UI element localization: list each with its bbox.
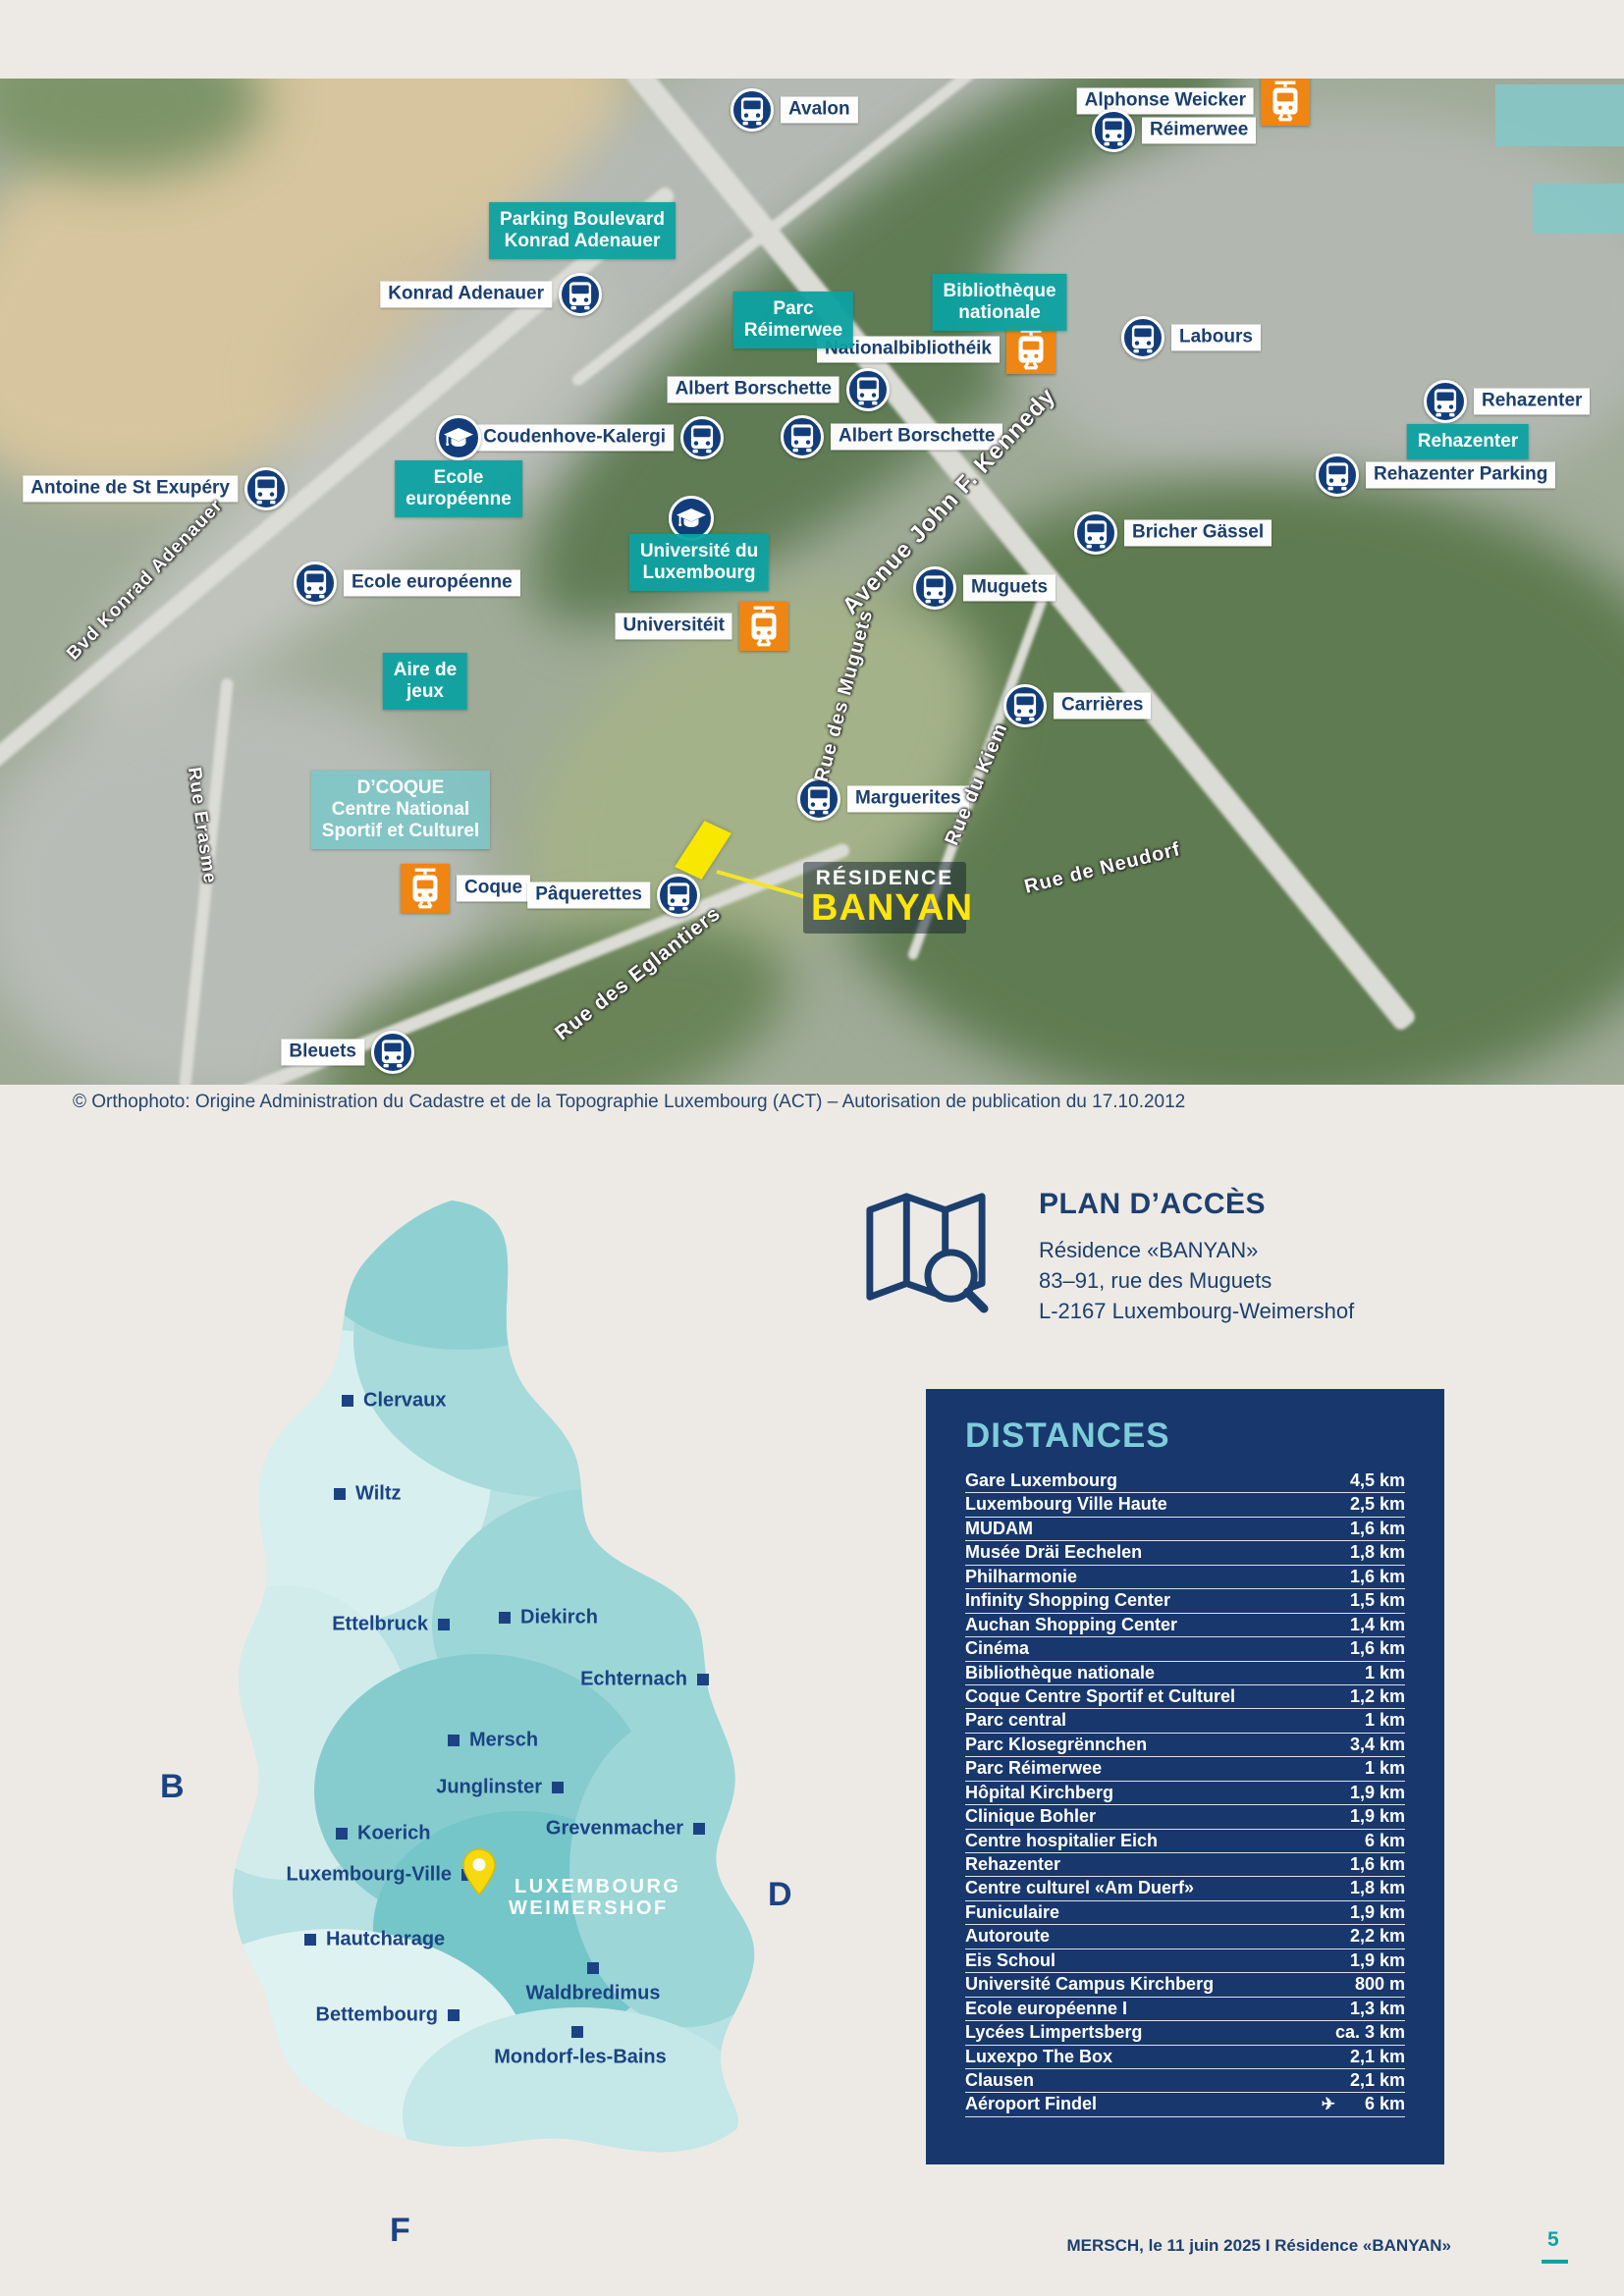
distance-value: 1,9 km <box>1350 1807 1405 1826</box>
map-stop-label: Pâquerettes <box>527 882 650 909</box>
city-marker <box>342 1395 353 1407</box>
distance-value: 1 km <box>1365 1711 1405 1730</box>
distance-row: Luxembourg Ville Haute2,5 km <box>965 1493 1405 1517</box>
distance-value: 2,2 km <box>1350 1927 1405 1946</box>
distance-row: MUDAM1,6 km <box>965 1518 1405 1541</box>
map-stop-label: Avalon <box>781 97 858 124</box>
page-number-rule <box>1542 2260 1568 2264</box>
distance-value: 2,1 km <box>1350 2071 1405 2090</box>
pin-label-line-1: LUXEMBOURG <box>514 1876 680 1897</box>
distance-row: Gare Luxembourg4,5 km <box>965 1469 1405 1493</box>
bus-stop-icon <box>371 1031 414 1074</box>
teal-decoration <box>1533 184 1624 234</box>
bus-stop-icon <box>1424 380 1467 423</box>
city-label: Echternach <box>580 1669 687 1691</box>
bus-stop-icon <box>1121 316 1164 359</box>
distance-value: 2,1 km <box>1350 2048 1405 2066</box>
distance-row: Lycées Limpertsbergca. 3 km <box>965 2021 1405 2045</box>
distance-row: Philharmonie1,6 km <box>965 1566 1405 1589</box>
access-plan-title: PLAN D’ACCÈS <box>1039 1188 1266 1221</box>
bus-stop-icon <box>1003 684 1047 727</box>
map-stop-label: Albert Borschette <box>668 377 839 403</box>
poi-box: Rehazenter <box>1407 424 1529 459</box>
pin-label: LUXEMBOURG WEIMERSHOF <box>509 1876 680 1919</box>
distance-label: Luxembourg Ville Haute <box>965 1495 1167 1514</box>
distances-panel: DISTANCES Gare Luxembourg4,5 kmLuxembour… <box>926 1389 1444 2164</box>
city-marker <box>697 1674 709 1685</box>
map-stop-label: Réimerwee <box>1142 118 1256 144</box>
poi-box: Parking BoulevardKonrad Adenauer <box>489 202 676 259</box>
distance-label: MUDAM <box>965 1520 1033 1538</box>
poi-box: Université duLuxembourg <box>629 534 769 591</box>
distance-row: Parc Réimerwee1 km <box>965 1757 1405 1781</box>
distance-label: Autoroute <box>965 1927 1050 1946</box>
map-stop-label: Coudenhove-Kalergi <box>475 425 674 452</box>
distance-label: Aéroport Findel <box>965 2095 1097 2113</box>
tram-stop-icon <box>739 602 788 651</box>
map-stop-label: Universitéit <box>616 614 732 640</box>
teal-decoration <box>1495 84 1624 146</box>
map-stop-label: Antoine de St Exupéry <box>23 476 238 503</box>
distance-value: 1 km <box>1365 1664 1405 1682</box>
country-map: ClervauxWiltzEttelbruckDiekirchEchternac… <box>137 1183 835 2253</box>
distance-value: 1,6 km <box>1350 1520 1405 1538</box>
address-line-1: Résidence «BANYAN» <box>1039 1235 1354 1265</box>
city-label: Clervaux <box>363 1390 447 1413</box>
tram-stop-icon <box>1261 79 1310 126</box>
map-stop-label: Ecole européenne <box>344 570 520 597</box>
distance-row: Parc central1 km <box>965 1709 1405 1733</box>
access-plan-address: Résidence «BANYAN» 83–91, rue des Muguet… <box>1039 1235 1354 1326</box>
distance-label: Gare Luxembourg <box>965 1471 1117 1490</box>
distance-value: 4,5 km <box>1350 1471 1405 1490</box>
city-marker <box>448 2009 460 2021</box>
distance-label: Funiculaire <box>965 1903 1059 1922</box>
distance-value: 1 km <box>1365 1759 1405 1778</box>
city-marker <box>499 1612 511 1624</box>
distance-value: 1,9 km <box>1350 1951 1405 1970</box>
distance-row: Hôpital Kirchberg1,9 km <box>965 1782 1405 1805</box>
country-letter-D: D <box>768 1876 792 1914</box>
poi-box: Aire dejeux <box>383 653 467 710</box>
bus-stop-icon <box>846 368 890 411</box>
bus-stop-icon <box>731 88 774 132</box>
page-number: 5 <box>1547 2228 1559 2252</box>
distance-value: 1,6 km <box>1350 1568 1405 1586</box>
poi-box: ParcRéimerwee <box>733 292 853 348</box>
bus-stop-icon <box>1316 454 1359 497</box>
distance-row: Parc Klosegrënnchen3,4 km <box>965 1734 1405 1757</box>
distance-row: Cinéma1,6 km <box>965 1637 1405 1661</box>
map-stop-label: Rehazenter <box>1474 389 1590 415</box>
distance-row: Infinity Shopping Center1,5 km <box>965 1589 1405 1613</box>
map-stop-label: Bleuets <box>281 1040 364 1066</box>
distance-label: Parc Klosegrënnchen <box>965 1735 1147 1754</box>
distance-value: 1,5 km <box>1350 1591 1405 1610</box>
city-label: Grevenmacher <box>546 1818 683 1841</box>
distance-label: Auchan Shopping Center <box>965 1616 1177 1634</box>
bus-stop-icon <box>657 874 700 917</box>
distance-value: 1,8 km <box>1350 1879 1405 1897</box>
distance-row: Centre hospitalier Eich6 km <box>965 1830 1405 1853</box>
city-label: Wiltz <box>355 1483 401 1506</box>
city-marker <box>336 1828 348 1840</box>
distance-label: Philharmonie <box>965 1568 1077 1586</box>
bus-stop-icon <box>294 561 337 605</box>
country-letter-B: B <box>160 1768 185 1806</box>
distance-label: Cinéma <box>965 1639 1029 1658</box>
distance-row: Aéroport Findel✈6 km <box>965 2093 1405 2116</box>
distance-label: Ecole européenne I <box>965 2000 1127 2018</box>
distance-value: 1,9 km <box>1350 1903 1405 1922</box>
distance-value: 1,9 km <box>1350 1784 1405 1802</box>
distance-row: Luxexpo The Box2,1 km <box>965 2046 1405 2069</box>
bus-stop-icon <box>1092 109 1135 152</box>
distances-title: DISTANCES <box>965 1416 1405 1456</box>
distance-label: Centre culturel «Am Duerf» <box>965 1879 1194 1897</box>
city-marker <box>571 2026 583 2038</box>
city-label: Ettelbruck <box>332 1614 428 1636</box>
city-marker <box>693 1823 705 1835</box>
distance-row: Musée Dräi Eechelen1,8 km <box>965 1541 1405 1565</box>
distance-value: ca. 3 km <box>1335 2023 1405 2042</box>
city-label: Koerich <box>357 1823 430 1845</box>
bus-stop-icon <box>913 566 956 610</box>
country-letter-F: F <box>390 2212 410 2250</box>
map-stop-label: Marguerites <box>847 786 969 813</box>
bus-stop-icon <box>781 415 824 458</box>
poi-box: Ecoleeuropéenne <box>395 460 522 517</box>
distance-label: Université Campus Kirchberg <box>965 1975 1214 1994</box>
distance-label: Clinique Bohler <box>965 1807 1096 1826</box>
bus-stop-icon <box>244 467 288 510</box>
distance-label: Parc Réimerwee <box>965 1759 1102 1778</box>
distance-label: Lycées Limpertsberg <box>965 2023 1142 2042</box>
distance-row: Autoroute2,2 km <box>965 1925 1405 1949</box>
map-stop-label: Bricher Gässel <box>1124 520 1272 547</box>
distance-value: 2,5 km <box>1350 1495 1405 1514</box>
distance-value: 1,6 km <box>1350 1855 1405 1874</box>
bus-stop-icon <box>680 416 724 459</box>
site-label-banyan: BANYAN <box>811 889 958 929</box>
location-pin-icon <box>462 1848 496 1908</box>
distance-label: Rehazenter <box>965 1855 1060 1874</box>
distance-row: Centre culturel «Am Duerf»1,8 km <box>965 1877 1405 1900</box>
city-label: Mondorf-les-Bains <box>494 2047 667 2069</box>
tram-stop-icon <box>401 864 450 913</box>
distance-row: Ecole européenne I1,3 km <box>965 1998 1405 2021</box>
city-label: Diekirch <box>520 1607 598 1629</box>
city-marker <box>304 1934 316 1946</box>
city-marker <box>552 1782 564 1793</box>
distance-row: Bibliothèque nationale1 km <box>965 1662 1405 1685</box>
city-label: Waldbredimus <box>525 1983 660 2005</box>
distance-row: Auchan Shopping Center1,4 km <box>965 1614 1405 1637</box>
distance-value: 1,8 km <box>1350 1543 1405 1562</box>
distance-label: Hôpital Kirchberg <box>965 1784 1113 1802</box>
distance-row: Université Campus Kirchberg800 m <box>965 1973 1405 1997</box>
bus-stop-icon <box>559 273 602 316</box>
bus-stop-icon <box>797 777 840 821</box>
distance-row: Clausen2,1 km <box>965 2069 1405 2093</box>
distance-label: Musée Dräi Eechelen <box>965 1543 1142 1562</box>
city-label: Luxembourg-Ville <box>286 1864 452 1887</box>
address-line-2: 83–91, rue des Muguets <box>1039 1265 1354 1296</box>
distance-label: Centre hospitalier Eich <box>965 1832 1158 1850</box>
page-footer: MERSCH, le 11 juin 2025 I Résidence «BAN… <box>1067 2236 1451 2256</box>
distance-value: 1,6 km <box>1350 1639 1405 1658</box>
pin-label-line-2: WEIMERSHOF <box>509 1897 680 1919</box>
site-label: RÉSIDENCE BANYAN <box>803 862 966 934</box>
address-line-3: L-2167 Luxembourg-Weimershof <box>1039 1296 1354 1326</box>
distance-row: Eis Schoul1,9 km <box>965 1949 1405 1973</box>
distance-label: Bibliothèque nationale <box>965 1664 1155 1682</box>
city-marker <box>334 1488 346 1500</box>
distance-row: Clinique Bohler1,9 km <box>965 1805 1405 1829</box>
map-stop-label: Labours <box>1171 325 1261 351</box>
distance-row: Rehazenter1,6 km <box>965 1853 1405 1877</box>
city-marker <box>438 1619 450 1630</box>
copyright-line: © Orthophoto: Origine Administration du … <box>73 1092 1185 1113</box>
city-marker <box>448 1735 460 1746</box>
distance-label: Eis Schoul <box>965 1951 1056 1970</box>
plane-icon: ✈ <box>1322 2096 1335 2113</box>
distance-label: Parc central <box>965 1711 1066 1730</box>
distance-value: 1,2 km <box>1350 1687 1405 1706</box>
distance-value: ✈6 km <box>1322 2095 1405 2113</box>
distance-value: 800 m <box>1355 1975 1405 1994</box>
distance-label: Luxexpo The Box <box>965 2048 1112 2066</box>
distance-value: 1,4 km <box>1350 1616 1405 1634</box>
bus-stop-icon <box>1074 511 1117 555</box>
map-stop-label: Albert Borschette <box>831 424 1002 451</box>
distance-label: Coque Centre Sportif et Culturel <box>965 1687 1235 1706</box>
city-label: Bettembourg <box>316 2004 438 2027</box>
distance-label: Clausen <box>965 2071 1034 2090</box>
tram-stop-icon <box>1006 325 1056 374</box>
aerial-map: AvalonAlphonse WeickerRéimerweeKonrad Ad… <box>0 79 1624 1085</box>
city-label: Junglinster <box>436 1777 542 1799</box>
map-stop-label: Muguets <box>963 575 1056 602</box>
map-stop-label: Konrad Adenauer <box>380 282 552 308</box>
distance-label: Infinity Shopping Center <box>965 1591 1170 1610</box>
poi-box: Bibliothèquenationale <box>932 274 1066 331</box>
city-marker <box>587 1962 599 1974</box>
map-stop-label: Rehazenter Parking <box>1366 462 1555 489</box>
school-icon <box>436 415 481 460</box>
distance-value: 3,4 km <box>1350 1735 1405 1754</box>
luxembourg-outline <box>137 1183 835 2253</box>
distance-row: Funiculaire1,9 km <box>965 1901 1405 1925</box>
distance-value: 6 km <box>1365 1832 1405 1850</box>
map-stop-label: Carrières <box>1054 693 1151 720</box>
city-label: Hautcharage <box>326 1929 445 1951</box>
map-stop-label: Coque <box>457 876 530 902</box>
city-label: Mersch <box>469 1730 538 1752</box>
distance-row: Coque Centre Sportif et Culturel1,2 km <box>965 1685 1405 1709</box>
poi-box: D’COQUECentre NationalSportif et Culture… <box>311 771 490 849</box>
site-label-residence: RÉSIDENCE <box>811 867 958 889</box>
folded-map-magnifier-icon <box>862 1183 990 1325</box>
distance-value: 1,3 km <box>1350 2000 1405 2018</box>
